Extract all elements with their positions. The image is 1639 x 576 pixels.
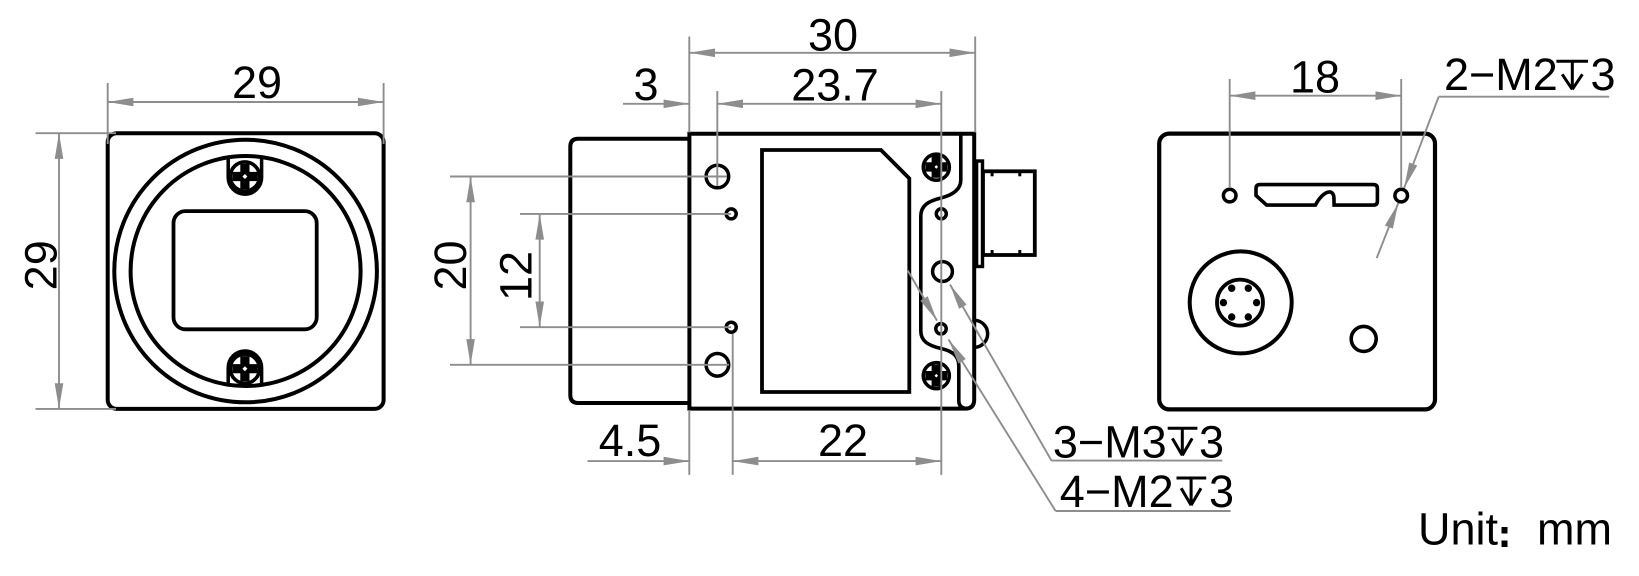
svg-text:2−M2: 2−M2 [1444, 49, 1558, 100]
svg-text:3: 3 [633, 59, 658, 110]
svg-text:20: 20 [425, 240, 476, 290]
svg-text:22: 22 [818, 415, 868, 466]
svg-text:mm: mm [1537, 504, 1612, 555]
svg-text:4−M2: 4−M2 [1060, 466, 1174, 517]
svg-text:18: 18 [1290, 52, 1340, 103]
svg-text:23.7: 23.7 [791, 60, 879, 111]
svg-text:29: 29 [16, 240, 67, 290]
svg-text:3: 3 [1209, 466, 1234, 517]
svg-text:12: 12 [491, 251, 542, 301]
svg-text:4.5: 4.5 [599, 415, 662, 466]
svg-text:Unit: Unit [1418, 504, 1499, 555]
svg-text:29: 29 [232, 57, 282, 108]
svg-text:3−M3: 3−M3 [1053, 417, 1167, 468]
svg-text:30: 30 [808, 10, 858, 61]
svg-text:3: 3 [1199, 417, 1224, 468]
svg-text:3: 3 [1591, 49, 1616, 100]
